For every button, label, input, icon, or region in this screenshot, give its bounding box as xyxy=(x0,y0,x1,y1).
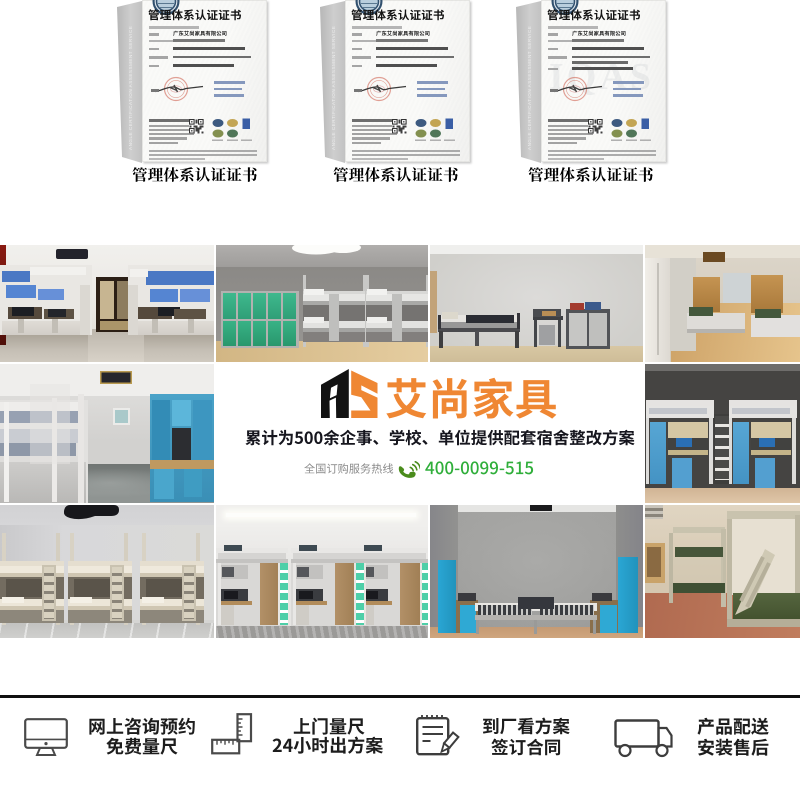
svg-text:ANGLE CERTIFICATION ASSESSMENT: ANGLE CERTIFICATION ASSESSMENT SERVICE xyxy=(331,26,336,150)
svg-text:ANGLE CERTIFICATION ASSESSMENT: ANGLE CERTIFICATION ASSESSMENT SERVICE xyxy=(527,26,532,150)
svg-text:ANGLE CERTIFICATION ASSESSMENT: ANGLE CERTIFICATION ASSESSMENT SERVICE xyxy=(128,26,133,150)
